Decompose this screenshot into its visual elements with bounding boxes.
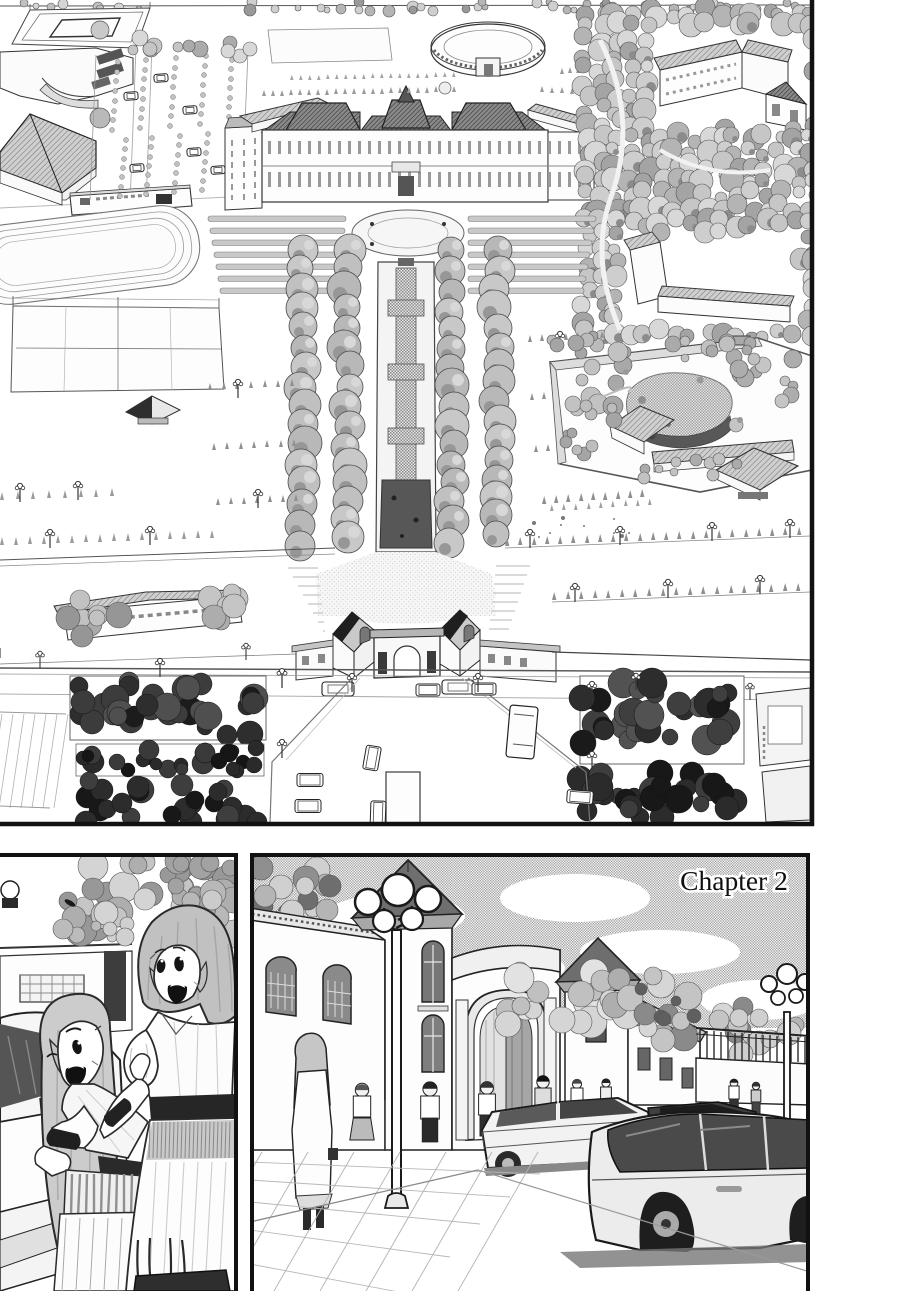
svg-text:Chapter 2: Chapter 2 <box>680 865 788 896</box>
